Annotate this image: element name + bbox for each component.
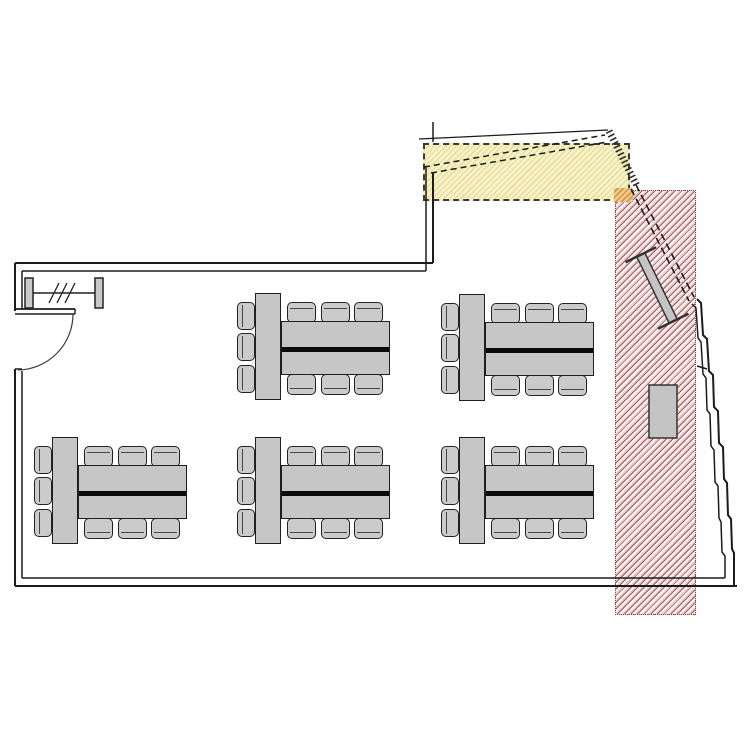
chair[interactable]	[558, 375, 587, 396]
chair[interactable]	[84, 446, 113, 467]
chair[interactable]	[441, 477, 459, 505]
chair[interactable]	[151, 446, 180, 467]
end-table[interactable]	[255, 437, 281, 544]
chair[interactable]	[491, 375, 520, 396]
end-table[interactable]	[459, 437, 485, 544]
chair[interactable]	[118, 446, 147, 467]
chair[interactable]	[354, 302, 383, 323]
table-group[interactable]	[441, 294, 594, 401]
chair[interactable]	[441, 366, 459, 394]
chair[interactable]	[321, 446, 350, 467]
chair[interactable]	[525, 446, 554, 467]
chair[interactable]	[441, 509, 459, 537]
chair[interactable]	[558, 518, 587, 539]
table-divider-line	[79, 491, 186, 496]
chair[interactable]	[151, 518, 180, 539]
table-divider-line	[282, 491, 389, 496]
chair[interactable]	[237, 302, 255, 330]
floor-plan-canvas	[0, 0, 750, 750]
table-groups-layer	[0, 0, 750, 750]
end-table[interactable]	[255, 293, 281, 400]
chair[interactable]	[354, 518, 383, 539]
chair[interactable]	[237, 509, 255, 537]
end-table[interactable]	[459, 294, 485, 401]
chair[interactable]	[354, 374, 383, 395]
chair[interactable]	[354, 446, 383, 467]
chair[interactable]	[34, 509, 52, 537]
table-group[interactable]	[237, 437, 390, 544]
chair[interactable]	[558, 303, 587, 324]
chair[interactable]	[34, 477, 52, 505]
chair[interactable]	[287, 518, 316, 539]
chair[interactable]	[237, 446, 255, 474]
chair[interactable]	[237, 477, 255, 505]
table-group[interactable]	[441, 437, 594, 544]
chair[interactable]	[287, 302, 316, 323]
chair[interactable]	[441, 446, 459, 474]
chair[interactable]	[321, 302, 350, 323]
end-table[interactable]	[52, 437, 78, 544]
chair[interactable]	[491, 518, 520, 539]
chair[interactable]	[321, 518, 350, 539]
table-group[interactable]	[34, 437, 187, 544]
table-divider-line	[486, 348, 593, 353]
chair[interactable]	[491, 303, 520, 324]
chair[interactable]	[441, 334, 459, 362]
chair[interactable]	[441, 303, 459, 331]
chair[interactable]	[558, 446, 587, 467]
chair[interactable]	[237, 333, 255, 361]
chair[interactable]	[525, 375, 554, 396]
chair[interactable]	[118, 518, 147, 539]
table-group[interactable]	[237, 293, 390, 400]
chair[interactable]	[287, 374, 316, 395]
chair[interactable]	[321, 374, 350, 395]
chair[interactable]	[287, 446, 316, 467]
chair[interactable]	[34, 446, 52, 474]
chair[interactable]	[491, 446, 520, 467]
chair[interactable]	[237, 365, 255, 393]
chair[interactable]	[525, 518, 554, 539]
chair[interactable]	[84, 518, 113, 539]
table-divider-line	[282, 347, 389, 352]
table-divider-line	[486, 491, 593, 496]
chair[interactable]	[525, 303, 554, 324]
